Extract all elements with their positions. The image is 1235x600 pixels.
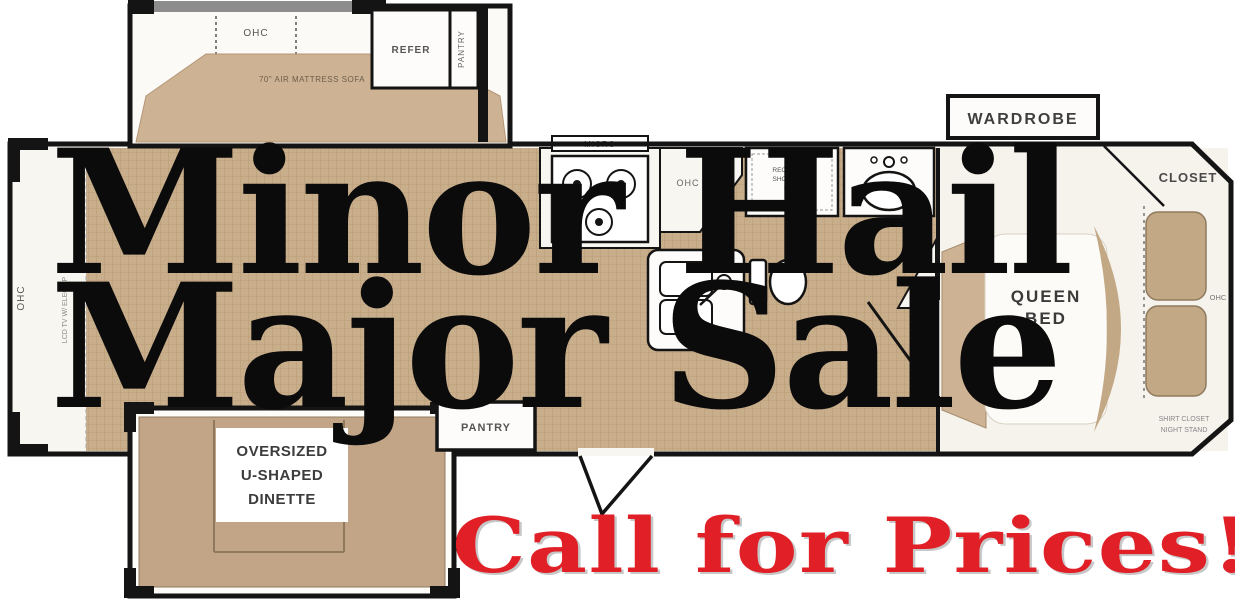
shirt-closet-label: SHIRT CLOSET: [1159, 416, 1210, 423]
promo-headline: Minor Hail Major Sale: [50, 146, 1071, 414]
rv-floorplan-ad: OHC LCD TV W/ ELEC FP OHC MICRO: [0, 0, 1235, 600]
dinette-label-2: U-SHAPED: [241, 467, 323, 484]
closet-door-lower: [1146, 306, 1206, 396]
refer-label: REFER: [392, 45, 431, 56]
slide-corner-stub: [128, 0, 154, 14]
bedroom-ohc-label: OHC: [1210, 293, 1227, 302]
front-ohc-label: OHC: [16, 285, 27, 310]
slideout-top-strip: [150, 1, 360, 12]
pantry-top-label: PANTRY: [457, 30, 466, 68]
dinette-label-3: DINETTE: [248, 491, 316, 508]
promo-cta: Call for Prices!: [452, 508, 1235, 584]
night-stand-label: NIGHT STAND: [1161, 427, 1208, 434]
closet-label: CLOSET: [1159, 170, 1218, 185]
sofa-label: 70" AIR MATTRESS SOFA: [259, 75, 365, 84]
closet-door-upper: [1146, 212, 1206, 300]
promo-line-2: Major Sale: [50, 280, 1071, 414]
sofa-ohc-label: OHC: [243, 28, 268, 39]
